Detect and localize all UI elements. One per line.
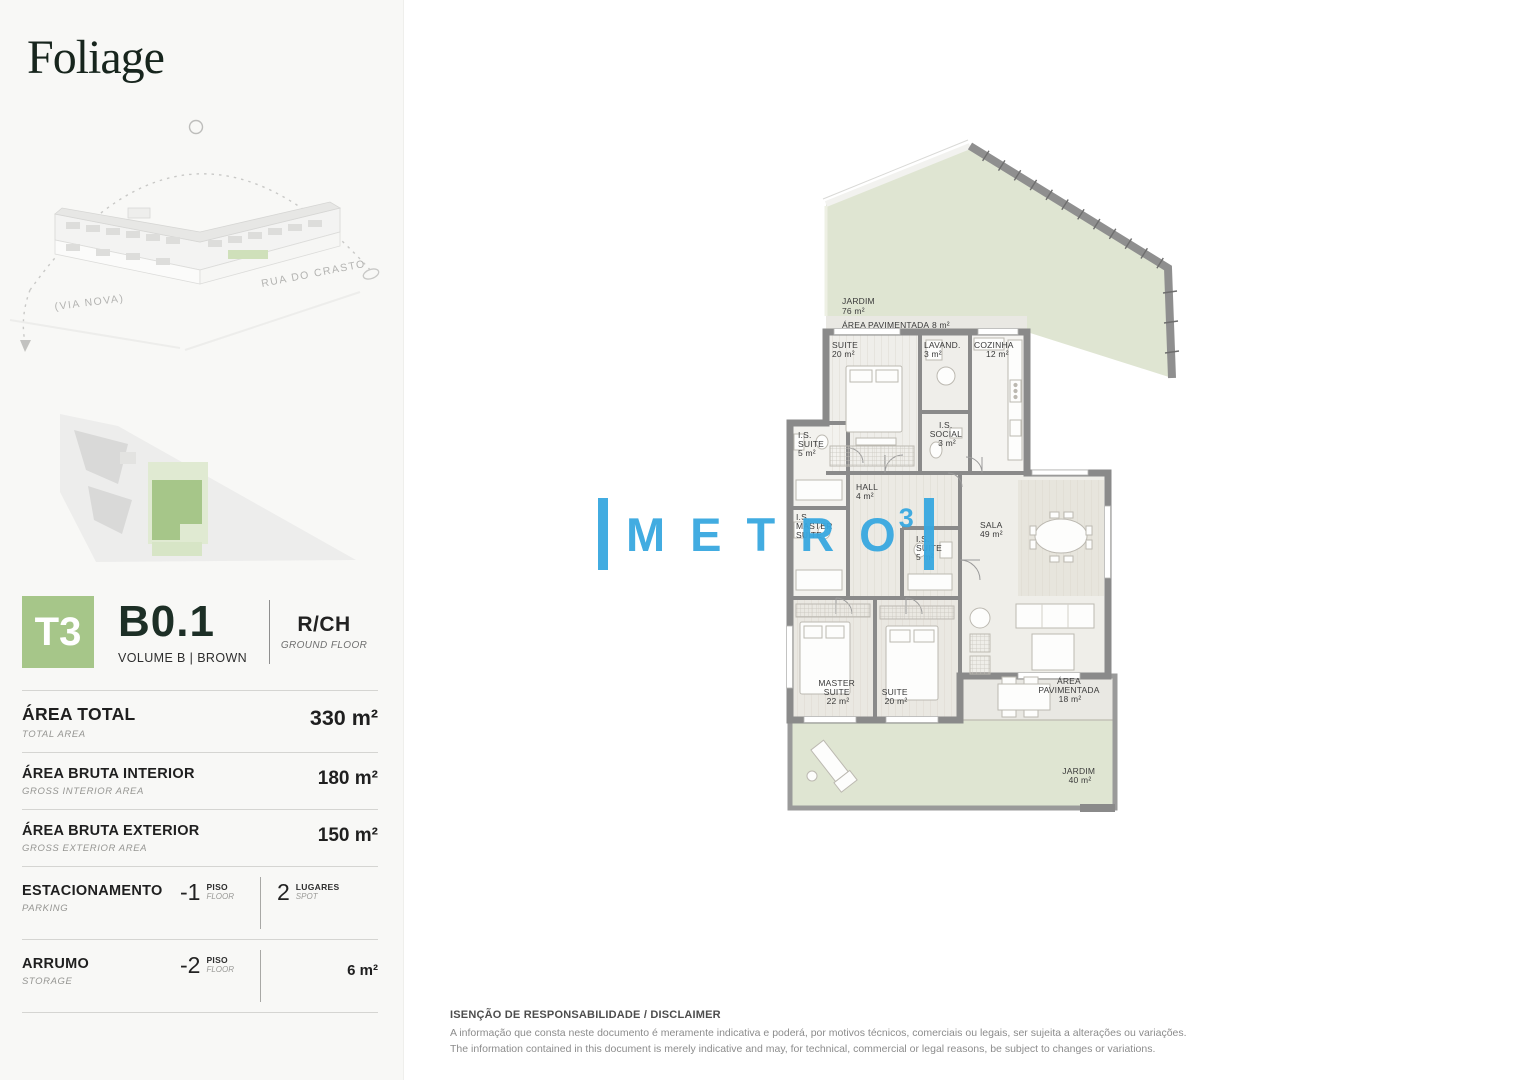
dining-table bbox=[1035, 519, 1087, 553]
metric-label: ÁREA TOTAL bbox=[22, 704, 136, 725]
floor-code: R/CH bbox=[270, 613, 378, 637]
storage-floor-unit-sub: FLOOR bbox=[206, 965, 234, 975]
floor-plan: JARDIM 76 m² ÁREA PAVIMENTADA 8 m² SUITE… bbox=[580, 128, 1180, 818]
metric-row-total: ÁREA TOTAL TOTAL AREA 330 m² bbox=[22, 690, 378, 752]
typology-badge: T3 bbox=[22, 596, 94, 668]
watermark-word: METRO bbox=[626, 511, 921, 558]
metric-label: ESTACIONAMENTO bbox=[22, 883, 180, 899]
arrow-down-icon bbox=[20, 340, 31, 352]
watermark-superscript: 3 bbox=[899, 503, 914, 534]
brand-logo: Foliage bbox=[27, 30, 164, 85]
metro-watermark: METRO 3 bbox=[598, 498, 934, 570]
disclaimer-title: ISENÇÃO DE RESPONSABILIDADE / DISCLAIMER bbox=[450, 1009, 1230, 1021]
metric-label: ÁREA BRUTA EXTERIOR bbox=[22, 823, 200, 839]
washer bbox=[937, 367, 955, 385]
sofa bbox=[1016, 604, 1094, 628]
metric-row-interior: ÁREA BRUTA INTERIOR GROSS INTERIOR AREA … bbox=[22, 752, 378, 809]
metric-sublabel: PARKING bbox=[22, 903, 180, 914]
orbit-marker bbox=[190, 121, 203, 134]
metric-sublabel: GROSS EXTERIOR AREA bbox=[22, 843, 200, 854]
room-label-sala: SALA 49 m² bbox=[980, 520, 1005, 539]
unit-code: B0.1 bbox=[118, 600, 247, 644]
room-label-suite-bottom: SUITE 20 m² bbox=[882, 687, 911, 706]
sidebar: Foliage bbox=[0, 0, 404, 1080]
street-label-left: (VIA NOVA) bbox=[54, 293, 125, 313]
wardrobe bbox=[830, 446, 914, 466]
disclaimer-line-en: The information contained in this docume… bbox=[450, 1042, 1230, 1057]
metric-value: 180 m² bbox=[318, 766, 378, 790]
watermark-bar-right bbox=[924, 498, 934, 570]
metric-sublabel: TOTAL AREA bbox=[22, 729, 136, 740]
unit-volume: VOLUME B | BROWN bbox=[118, 651, 247, 665]
parking-floor-unit: PISO bbox=[206, 882, 234, 892]
area-metrics: ÁREA TOTAL TOTAL AREA 330 m² ÁREA BRUTA … bbox=[22, 690, 378, 1013]
storage-floor-unit: PISO bbox=[206, 955, 234, 965]
highlighted-unit bbox=[228, 250, 268, 259]
siteplan-sketch bbox=[0, 392, 400, 592]
storage-area-value: 6 m² bbox=[347, 954, 378, 979]
metric-value: 330 m² bbox=[310, 704, 378, 731]
parking-spots-unit-sub: SPOT bbox=[296, 892, 340, 902]
metric-sublabel: STORAGE bbox=[22, 976, 180, 987]
shower bbox=[796, 570, 842, 590]
floor-name: GROUND FLOOR bbox=[270, 640, 378, 651]
metric-sublabel: GROSS INTERIOR AREA bbox=[22, 786, 195, 797]
parking-floor-unit-sub: FLOOR bbox=[206, 892, 234, 902]
metric-label: ÁREA BRUTA INTERIOR bbox=[22, 766, 195, 782]
unit-header: T3 B0.1 VOLUME B | BROWN R/CH GROUND FLO… bbox=[22, 596, 378, 668]
metric-row-parking: ESTACIONAMENTO PARKING -1 PISO FLOOR 2 bbox=[22, 866, 378, 939]
room-label-paved-top: ÁREA PAVIMENTADA 8 m² bbox=[842, 320, 950, 330]
metric-label: ARRUMO bbox=[22, 956, 180, 972]
floorplan-sheet: Foliage bbox=[0, 0, 1524, 1080]
disclaimer-line-pt: A informação que consta neste documento … bbox=[450, 1026, 1230, 1041]
metric-row-storage: ARRUMO STORAGE -2 PISO FLOOR 6 m² bbox=[22, 939, 378, 1013]
parking-floor-value: -1 bbox=[180, 881, 200, 904]
parking-spots-value: 2 bbox=[277, 881, 290, 904]
metric-value: 150 m² bbox=[318, 823, 378, 847]
watermark-bar-left bbox=[598, 498, 608, 570]
bathtub bbox=[796, 480, 842, 500]
metric-row-exterior: ÁREA BRUTA EXTERIOR GROSS EXTERIOR AREA … bbox=[22, 809, 378, 866]
disclaimer: ISENÇÃO DE RESPONSABILIDADE / DISCLAIMER… bbox=[450, 1009, 1230, 1057]
building-illustration: (VIA NOVA) RUA DO CRASTO bbox=[0, 112, 400, 352]
storage-floor-value: -2 bbox=[180, 954, 200, 977]
parking-spots-unit: LUGARES bbox=[296, 882, 340, 892]
